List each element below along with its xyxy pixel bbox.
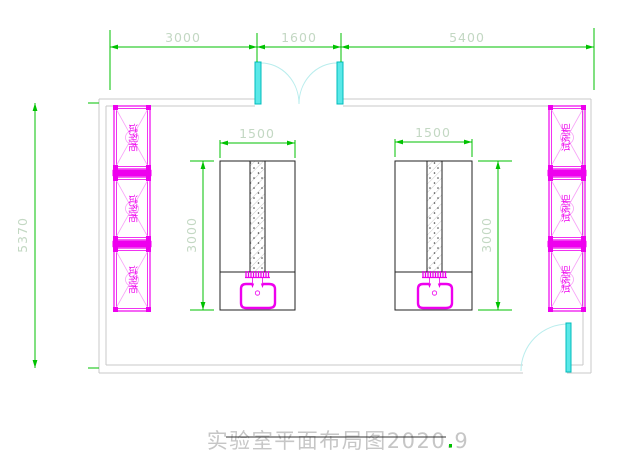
reagent-cabinet-column-left: 试剂柜 试剂柜 试剂柜	[113, 105, 152, 312]
door-leaf	[337, 62, 343, 104]
room-walls	[99, 99, 591, 373]
cabinet-connector	[548, 170, 587, 176]
door-swing-arc	[299, 63, 337, 104]
dimension-bench-left-width: 1500	[220, 126, 295, 158]
dim-label-bench-width: 1500	[415, 125, 451, 140]
dim-label-bench-depth: 3000	[479, 217, 494, 253]
single-door	[521, 323, 571, 372]
dimension-bench-right-width: 1500	[395, 125, 472, 157]
dimension-top: 3000 1600 5400	[110, 28, 594, 90]
door-leaf	[566, 323, 571, 372]
reagent-cabinet: 试剂柜	[548, 176, 586, 241]
door-leaf	[255, 62, 261, 104]
door-swing-arc	[521, 324, 568, 371]
dim-label-overall-height: 5370	[15, 217, 30, 253]
reagent-cabinet: 试剂柜	[113, 176, 151, 241]
dimension-bench-left-depth: 3000	[184, 161, 214, 310]
dimension-left: 5370	[15, 103, 99, 368]
cabinet-connector	[113, 241, 152, 247]
dim-label-top-middle: 1600	[281, 30, 317, 45]
double-door	[255, 62, 343, 104]
title-block: 实验室平面布局图2020.9	[207, 429, 469, 453]
reagent-cabinet: 试剂柜	[548, 105, 586, 170]
cabinet-label: 试剂柜	[561, 265, 573, 294]
floor-plan-canvas: 3000 1600 5400 5370 试剂柜	[0, 0, 619, 469]
reagent-cabinet: 试剂柜	[113, 247, 151, 312]
cad-floor-plan-view: 3000 1600 5400 5370 试剂柜	[0, 0, 619, 469]
cabinet-label: 试剂柜	[127, 194, 139, 223]
dim-label-bench-width: 1500	[239, 126, 275, 141]
lab-bench-right: 1500 3000	[395, 125, 512, 310]
door-swing-arc	[261, 63, 299, 104]
dim-label-bench-depth: 3000	[184, 217, 199, 253]
dim-label-top-right: 5400	[449, 30, 485, 45]
cabinet-connector	[548, 241, 587, 247]
dim-label-top-left: 3000	[165, 30, 201, 45]
cabinet-label: 试剂柜	[561, 123, 573, 152]
reagent-cabinet-column-right: 试剂柜 试剂柜 试剂柜	[548, 105, 587, 312]
dimension-bench-right-depth: 3000	[478, 161, 512, 310]
drawing-title: 实验室平面布局图2020.9	[207, 429, 469, 453]
reagent-cabinet: 试剂柜	[113, 105, 151, 170]
reagent-cabinet: 试剂柜	[548, 247, 586, 312]
cabinet-connector	[113, 170, 152, 176]
cabinet-label: 试剂柜	[127, 123, 139, 152]
cabinet-label: 试剂柜	[127, 265, 139, 294]
lab-bench-left: 1500 3000	[184, 126, 295, 310]
title-green-dot	[449, 444, 452, 448]
cabinet-label: 试剂柜	[561, 194, 573, 223]
